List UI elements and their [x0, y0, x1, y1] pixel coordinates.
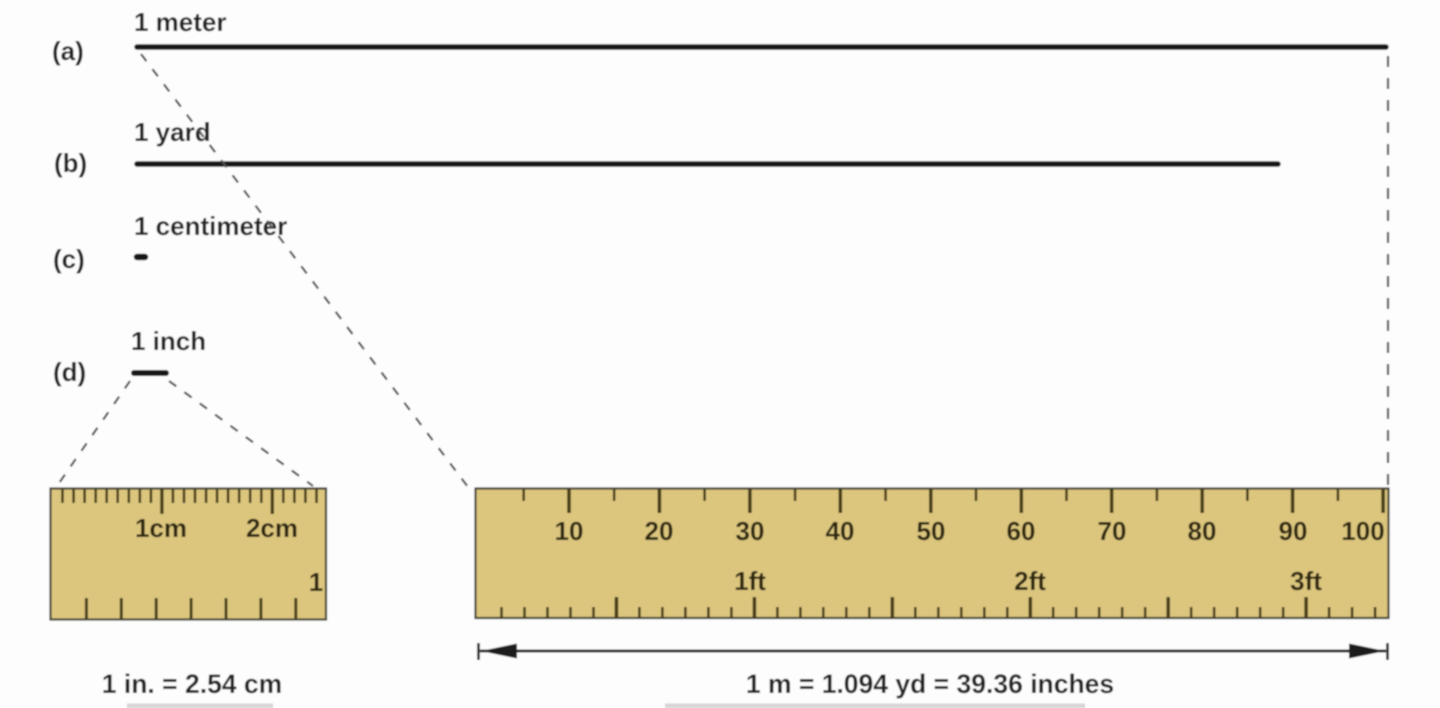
svg-text:50: 50	[917, 516, 946, 546]
svg-text:1ft: 1ft	[734, 566, 766, 596]
svg-text:20: 20	[645, 516, 674, 546]
svg-text:90: 90	[1279, 516, 1308, 546]
svg-text:100: 100	[1341, 516, 1384, 546]
svg-text:(c): (c)	[53, 244, 85, 274]
svg-text:40: 40	[826, 516, 855, 546]
svg-text:1 centimeter: 1 centimeter	[134, 211, 287, 241]
svg-text:(a): (a)	[52, 36, 84, 66]
svg-text:80: 80	[1188, 516, 1217, 546]
svg-text:2ft: 2ft	[1014, 566, 1046, 596]
svg-text:1cm: 1cm	[135, 513, 187, 543]
svg-text:1 m = 1.094 yd = 39.36 inches: 1 m = 1.094 yd = 39.36 inches	[746, 669, 1114, 699]
svg-text:(b): (b)	[54, 148, 87, 178]
svg-text:10: 10	[555, 516, 584, 546]
svg-text:70: 70	[1098, 516, 1127, 546]
svg-text:30: 30	[736, 516, 765, 546]
svg-text:1 in. = 2.54 cm: 1 in. = 2.54 cm	[102, 669, 282, 699]
svg-text:60: 60	[1007, 516, 1036, 546]
svg-text:1 meter: 1 meter	[134, 7, 227, 37]
svg-text:(d): (d)	[53, 357, 86, 387]
svg-text:3ft: 3ft	[1290, 566, 1322, 596]
svg-text:1: 1	[309, 567, 323, 597]
svg-text:1 inch: 1 inch	[131, 326, 206, 356]
svg-text:2cm: 2cm	[246, 513, 298, 543]
